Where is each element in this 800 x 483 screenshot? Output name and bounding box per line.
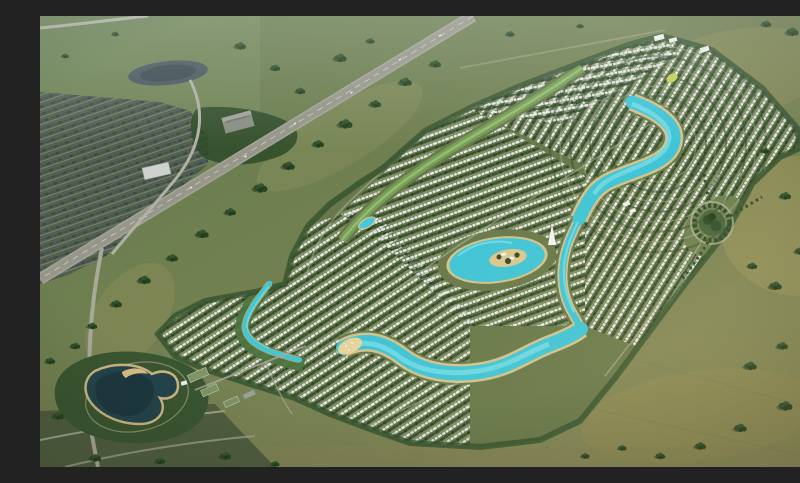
aerial-scene <box>40 16 800 467</box>
vignette <box>40 16 800 467</box>
aerial-render: Aerial rendering of a large master-plann… <box>40 16 800 467</box>
